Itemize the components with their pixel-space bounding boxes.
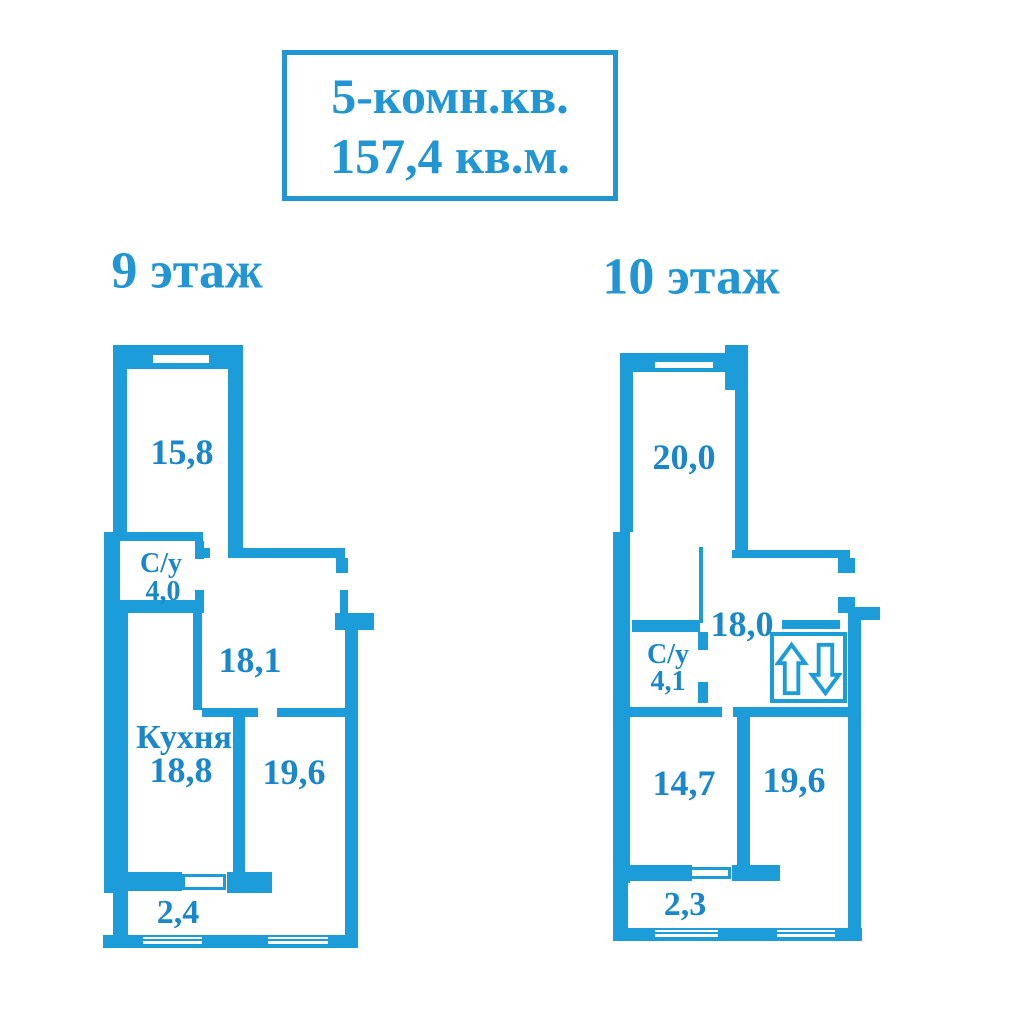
wall-segment xyxy=(193,613,202,710)
wall-segment xyxy=(613,620,630,883)
wall-segment xyxy=(613,532,630,620)
wall-segment xyxy=(228,345,243,558)
wall-segment xyxy=(335,613,374,630)
wall-segment xyxy=(113,893,128,935)
wall-segment xyxy=(782,620,840,629)
balcony-glazing xyxy=(268,935,328,944)
floorplan-floor9: 15,8 С/у 4,0 18,1 Кухня 18,8 19,6 2,4 xyxy=(100,343,385,961)
window xyxy=(182,874,226,890)
wall-segment xyxy=(630,707,722,717)
floor10-heading: 10 этаж xyxy=(602,248,779,307)
wall-segment xyxy=(620,353,633,532)
wall-segment xyxy=(227,872,272,893)
wall-segment xyxy=(737,707,750,880)
wall-segment xyxy=(113,345,127,535)
wall-segment xyxy=(200,548,210,558)
room-area-label: 19,6 xyxy=(763,759,826,801)
wall-segment xyxy=(107,532,203,541)
balcony-area-label: 2,4 xyxy=(157,894,200,932)
wall-segment xyxy=(277,708,348,717)
hall-area-label: 18,1 xyxy=(219,639,282,681)
elevator-shaft xyxy=(770,632,847,703)
wall-segment xyxy=(733,707,856,717)
wall-segment xyxy=(128,872,182,891)
wall-segment xyxy=(848,607,861,941)
balcony-glazing xyxy=(655,928,718,937)
apartment-title-box: 5-комн.кв. 157,4 кв.м. xyxy=(282,50,618,201)
wall-segment xyxy=(345,613,358,948)
wall-segment xyxy=(613,865,692,881)
room-area-label: 20,0 xyxy=(653,436,716,478)
wall-segment xyxy=(632,620,700,632)
hall-area-label: 18,0 xyxy=(711,603,774,645)
wall-segment xyxy=(698,682,708,703)
arrow-up-icon xyxy=(778,645,805,693)
window xyxy=(150,352,212,366)
wall-segment xyxy=(732,865,780,881)
arrow-down-icon xyxy=(812,645,839,693)
apartment-type: 5-комн.кв. xyxy=(331,66,569,126)
wall-segment xyxy=(202,708,258,717)
wall-segment xyxy=(336,558,348,573)
wall-segment xyxy=(735,345,748,558)
wall-segment xyxy=(699,547,703,623)
wall-segment xyxy=(732,550,850,558)
kitchen-area-label: 18,8 xyxy=(150,749,213,791)
wall-segment xyxy=(838,558,855,573)
room-area-label: 14,7 xyxy=(653,762,716,804)
window xyxy=(689,867,731,879)
floorplan-floor10: 20,0 18,0 С/у 4,1 14,7 19,6 2,3 xyxy=(605,343,890,961)
window xyxy=(652,359,716,371)
room-area-label: 15,8 xyxy=(151,431,214,473)
wall-segment xyxy=(228,548,345,558)
floorplan-page: 5-комн.кв. 157,4 кв.м. 9 этаж 10 этаж xyxy=(0,0,1024,1036)
wall-segment xyxy=(698,632,708,650)
bathroom-area-label: 4,1 xyxy=(651,666,686,698)
elevator-up-down-icon xyxy=(775,638,842,699)
bathroom-area-label: 4,0 xyxy=(146,576,181,608)
balcony-glazing xyxy=(143,935,202,944)
floor9-heading: 9 этаж xyxy=(111,242,262,301)
apartment-total-area: 157,4 кв.м. xyxy=(330,126,570,186)
balcony-area-label: 2,3 xyxy=(664,886,707,924)
wall-segment xyxy=(340,590,348,613)
wall-segment xyxy=(233,708,245,893)
wall-segment xyxy=(104,532,120,620)
room-area-label: 19,6 xyxy=(263,751,326,793)
wall-segment xyxy=(850,607,880,620)
balcony-glazing xyxy=(777,928,835,937)
wall-segment xyxy=(104,613,128,893)
